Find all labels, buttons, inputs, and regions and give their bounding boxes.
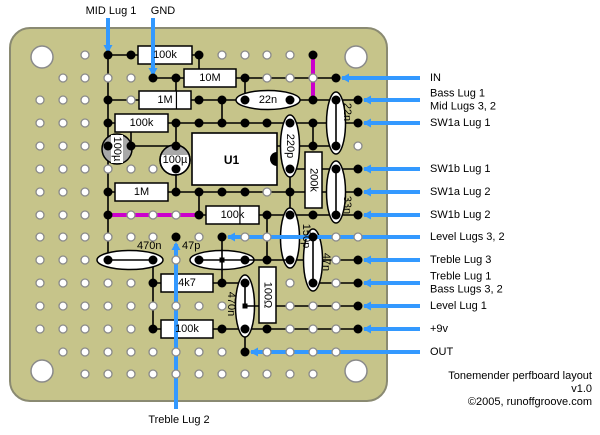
perfboard-hole <box>218 348 226 356</box>
perfboard-hole <box>127 279 135 287</box>
perfboard-hole <box>309 302 317 310</box>
solder-dot <box>218 233 227 242</box>
label-plus-9v: +9v <box>430 323 449 335</box>
perfboard-hole <box>59 279 67 287</box>
perfboard-hole <box>172 370 180 378</box>
perfboard-hole <box>332 302 340 310</box>
perfboard-hole <box>104 325 112 333</box>
perfboard-hole <box>127 74 135 82</box>
perfboard-hole <box>36 256 44 264</box>
solder-dot <box>286 188 295 197</box>
perfboard-hole <box>127 370 135 378</box>
solder-dot <box>354 325 363 334</box>
ic-label: U1 <box>224 153 240 167</box>
solder-dot <box>172 188 181 197</box>
perfboard-hole <box>81 211 89 219</box>
perfboard-hole <box>36 119 44 127</box>
solder-dot <box>332 165 341 174</box>
perfboard-hole <box>309 325 317 333</box>
resistor-label: 4k7 <box>178 277 196 289</box>
perfboard-hole <box>149 302 157 310</box>
title-line-2: v1.0 <box>448 383 592 396</box>
capacitor-label: 100µ <box>163 154 188 166</box>
perfboard-hole <box>104 348 112 356</box>
title-line-3: ©2005, runoffgroove.com <box>448 396 592 409</box>
solder-dot <box>104 119 113 128</box>
label-treble-lug-3: Treble Lug 3 <box>430 254 491 266</box>
title-line-1: Tonemender perfboard layout <box>448 370 592 383</box>
perfboard-hole <box>81 348 89 356</box>
perfboard-hole <box>36 325 44 333</box>
solder-dot <box>195 96 204 105</box>
label-sw1b-lug-1: SW1b Lug 1 <box>430 163 491 175</box>
wire-junction <box>243 304 248 309</box>
perfboard-hole <box>332 279 340 287</box>
wire-junction <box>220 258 225 263</box>
perfboard-hole <box>36 188 44 196</box>
solder-dot <box>195 119 204 128</box>
perfboard-hole <box>286 279 294 287</box>
perfboard-hole <box>241 370 249 378</box>
perfboard-hole <box>332 256 340 264</box>
label-mid-lug-1: MID Lug 1 <box>86 5 137 17</box>
resistor-label: 100k <box>153 49 177 61</box>
solder-dot <box>195 188 204 197</box>
perfboard-hole <box>81 74 89 82</box>
resistor-label: 100Ω <box>262 282 274 309</box>
capacitor-label: 150p <box>300 224 312 248</box>
solder-dot <box>241 325 250 334</box>
perfboard-hole <box>172 348 180 356</box>
perfboard-hole <box>286 370 294 378</box>
solder-dot <box>354 165 363 174</box>
solder-dot <box>195 51 204 60</box>
solder-dot <box>241 188 250 197</box>
solder-dot <box>332 96 341 105</box>
perfboard-hole <box>332 348 340 356</box>
perfboard-hole <box>59 325 67 333</box>
solder-dot <box>104 188 113 197</box>
perfboard-hole <box>332 325 340 333</box>
solder-dot <box>172 74 181 83</box>
solder-dot <box>127 142 136 151</box>
solder-dot <box>263 211 272 220</box>
solder-dot <box>286 119 295 128</box>
resistor-label: 200k <box>308 168 320 192</box>
perfboard-hole <box>59 256 67 264</box>
solder-dot <box>218 279 227 288</box>
perfboard-hole <box>195 370 203 378</box>
solder-dot <box>309 211 318 220</box>
label-bass-lug-1-mid-lugs-3-2: Bass Lug 1Mid Lugs 3, 2 <box>430 88 496 113</box>
perfboard-hole <box>127 302 135 310</box>
perfboard-hole <box>241 51 249 59</box>
solder-dot <box>241 256 250 265</box>
perfboard-hole <box>104 165 112 173</box>
solder-dot <box>172 119 181 128</box>
solder-dot <box>104 51 113 60</box>
perfboard-hole <box>36 279 44 287</box>
solder-dot <box>332 142 341 151</box>
perfboard-hole <box>59 96 67 104</box>
resistor-label: 1M <box>157 94 172 106</box>
perfboard-hole <box>36 211 44 219</box>
perfboard-hole <box>309 370 317 378</box>
perfboard-hole <box>263 74 271 82</box>
capacitor-label: 100µ <box>111 137 123 162</box>
solder-dot <box>241 348 250 357</box>
perfboard-hole <box>286 302 294 310</box>
ic-u1: U1 <box>192 133 277 185</box>
perfboard-hole <box>36 302 44 310</box>
perfboard-hole <box>81 279 89 287</box>
perfboard-hole <box>59 119 67 127</box>
perfboard-hole <box>59 188 67 196</box>
solder-dot <box>218 96 227 105</box>
solder-dot <box>309 142 318 151</box>
perfboard-hole <box>172 211 180 219</box>
perfboard-hole <box>149 165 157 173</box>
label-level-lugs-3-2: Level Lugs 3, 2 <box>430 231 505 243</box>
perfboard-hole <box>36 233 44 241</box>
solder-dot <box>309 51 318 60</box>
solder-dot <box>241 74 250 83</box>
label-sw1a-lug-2: SW1a Lug 2 <box>430 186 491 198</box>
perfboard-hole <box>127 96 135 104</box>
label-out: OUT <box>430 346 454 358</box>
solder-dot <box>263 325 272 334</box>
solder-dot <box>332 74 341 83</box>
perfboard-hole <box>59 142 67 150</box>
label-level-lug-1: Level Lug 1 <box>430 300 487 312</box>
perfboard-hole <box>263 51 271 59</box>
perfboard-hole <box>81 119 89 127</box>
perfboard-hole <box>263 188 271 196</box>
mounting-hole <box>345 46 367 68</box>
perfboard-hole <box>172 302 180 310</box>
perfboard-hole <box>81 142 89 150</box>
perfboard-hole <box>149 348 157 356</box>
perfboard-hole <box>81 256 89 264</box>
solder-dot <box>104 96 113 105</box>
perfboard-hole <box>286 348 294 356</box>
perfboard-hole <box>104 279 112 287</box>
solder-dot <box>354 96 363 105</box>
perfboard-hole <box>127 211 135 219</box>
perfboard-hole <box>59 348 67 356</box>
solder-dot <box>218 119 227 128</box>
perfboard-hole <box>286 325 294 333</box>
resistor-label: 1M <box>134 186 149 198</box>
resistor-label: 100k <box>130 117 154 129</box>
label-treble-lug-2: Treble Lug 2 <box>148 414 209 426</box>
resistor-label: 100k <box>221 209 245 221</box>
perfboard-hole <box>263 370 271 378</box>
perfboard-hole <box>354 233 362 241</box>
perfboard-hole <box>59 302 67 310</box>
perfboard-hole <box>127 325 135 333</box>
solder-dot <box>263 119 272 128</box>
solder-dot <box>354 279 363 288</box>
perfboard-hole <box>218 51 226 59</box>
solder-dot <box>195 256 204 265</box>
perfboard-hole <box>59 211 67 219</box>
solder-dot <box>263 256 272 265</box>
capacitor-label: 220p <box>284 134 296 158</box>
resistor-label: 10M <box>199 72 220 84</box>
perfboard-hole <box>104 370 112 378</box>
capacitor-label: 22n <box>341 103 353 121</box>
perfboard-hole <box>104 233 112 241</box>
solder-dot <box>354 188 363 197</box>
solder-dot <box>241 96 250 105</box>
solder-dot <box>354 256 363 265</box>
perfboard-hole <box>263 233 271 241</box>
mounting-hole <box>31 360 53 382</box>
resistor-label: 100k <box>175 323 199 335</box>
solder-dot <box>149 325 158 334</box>
capacitor-label: 47p <box>182 240 200 252</box>
perfboard-hole <box>263 348 271 356</box>
perfboard-hole <box>104 74 112 82</box>
solder-dot <box>354 211 363 220</box>
perfboard-hole <box>59 165 67 173</box>
solder-dot <box>354 302 363 311</box>
perfboard-hole <box>81 325 89 333</box>
solder-dot <box>172 142 181 151</box>
perfboard-hole <box>149 211 157 219</box>
solder-dot <box>241 279 250 288</box>
perfboard-hole <box>104 302 112 310</box>
perfboard-hole <box>354 142 362 150</box>
perfboard-hole <box>195 302 203 310</box>
perfboard-hole <box>172 256 180 264</box>
perfboard-hole <box>218 370 226 378</box>
tonemender-perfboard-layout: U1100k10M1M100k1M100k4k7100k200k100Ω22n4… <box>0 0 600 435</box>
mounting-hole <box>345 360 367 382</box>
perfboard-hole <box>127 233 135 241</box>
perfboard-hole <box>195 348 203 356</box>
solder-dot <box>104 256 113 265</box>
perfboard-hole <box>241 233 249 241</box>
label-treble-lug-1-bass-lugs-3-2: Treble Lug 1Bass Lugs 3, 2 <box>430 271 503 296</box>
capacitor-label: 22n <box>259 94 277 106</box>
perfboard-hole <box>286 51 294 59</box>
perfboard-hole <box>309 348 317 356</box>
solder-dot <box>172 233 181 242</box>
label-in: IN <box>430 72 441 84</box>
perfboard-hole <box>309 74 317 82</box>
solder-dot <box>286 96 295 105</box>
solder-dot <box>309 119 318 128</box>
perfboard-hole <box>59 74 67 82</box>
perfboard-hole <box>81 370 89 378</box>
perfboard-hole <box>127 348 135 356</box>
solder-dot <box>127 51 136 60</box>
solder-dot <box>332 211 341 220</box>
solder-dot <box>309 96 318 105</box>
solder-dot <box>104 211 113 220</box>
solder-dot <box>218 188 227 197</box>
perfboard-hole <box>332 233 340 241</box>
solder-dot <box>149 256 158 265</box>
solder-dot <box>354 119 363 128</box>
perfboard-hole <box>81 302 89 310</box>
capacitor-label: 470n <box>225 292 237 316</box>
solder-dot <box>241 119 250 128</box>
perfboard-hole <box>81 96 89 104</box>
solder-dot <box>286 165 295 174</box>
mounting-hole <box>31 46 53 68</box>
solder-dot <box>149 279 158 288</box>
perfboard-hole <box>127 165 135 173</box>
perfboard-hole <box>149 370 157 378</box>
solder-dot <box>286 211 295 220</box>
perfboard-hole <box>59 233 67 241</box>
title-block: Tonemender perfboard layout v1.0 ©2005, … <box>448 370 592 409</box>
perfboard-hole <box>81 51 89 59</box>
perfboard-hole <box>81 188 89 196</box>
capacitor-label: 47n <box>320 253 332 271</box>
solder-dot <box>195 211 204 220</box>
perfboard-hole <box>81 165 89 173</box>
perfboard-hole <box>81 233 89 241</box>
label-gnd: GND <box>151 5 176 17</box>
capacitor-label: 33n <box>341 196 353 214</box>
perfboard-hole <box>36 96 44 104</box>
capacitor-label: 470n <box>137 240 161 252</box>
solder-dot <box>218 325 227 334</box>
label-sw1a-lug-1: SW1a Lug 1 <box>430 117 491 129</box>
solder-dot <box>309 279 318 288</box>
perfboard-hole <box>218 302 226 310</box>
solder-dot <box>149 74 158 83</box>
label-sw1b-lug-2: SW1b Lug 2 <box>430 209 491 221</box>
perfboard-hole <box>36 165 44 173</box>
perfboard-hole <box>286 74 294 82</box>
solder-dot <box>286 256 295 265</box>
perfboard-hole <box>36 142 44 150</box>
